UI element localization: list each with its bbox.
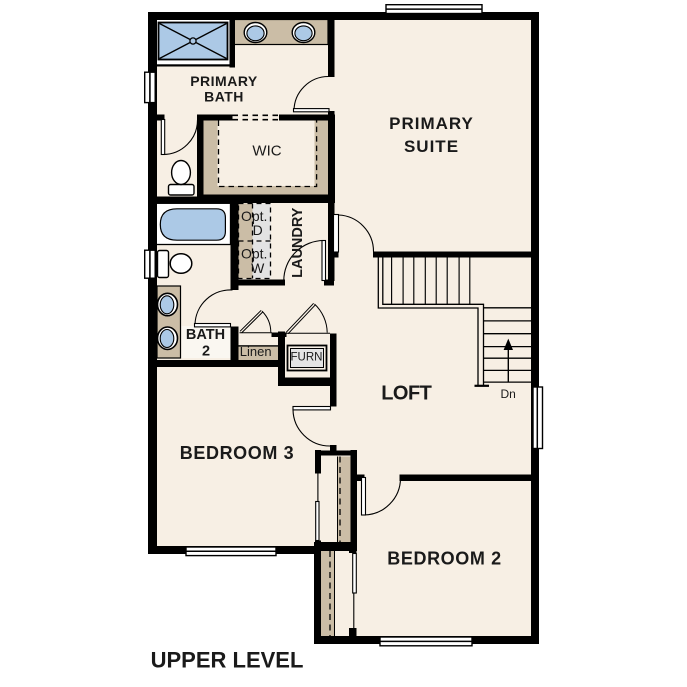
svg-text:PRIMARY: PRIMARY: [389, 114, 474, 133]
svg-text:LAUNDRY: LAUNDRY: [290, 207, 306, 278]
svg-text:FURN: FURN: [291, 351, 323, 363]
svg-text:UPPER LEVEL: UPPER LEVEL: [151, 648, 304, 673]
svg-text:PRIMARY: PRIMARY: [190, 73, 258, 89]
svg-text:Dn: Dn: [501, 387, 516, 401]
svg-text:BEDROOM 2: BEDROOM 2: [387, 549, 501, 569]
svg-text:Linen: Linen: [240, 344, 272, 359]
svg-text:D: D: [253, 222, 263, 238]
svg-text:BEDROOM 3: BEDROOM 3: [180, 443, 294, 463]
svg-text:2: 2: [202, 344, 210, 360]
svg-text:BATH: BATH: [204, 89, 244, 105]
svg-text:LOFT: LOFT: [381, 383, 431, 405]
svg-text:W: W: [251, 260, 265, 276]
svg-text:WIC: WIC: [252, 143, 281, 160]
svg-text:BATH: BATH: [186, 327, 225, 343]
svg-text:SUITE: SUITE: [404, 137, 459, 156]
